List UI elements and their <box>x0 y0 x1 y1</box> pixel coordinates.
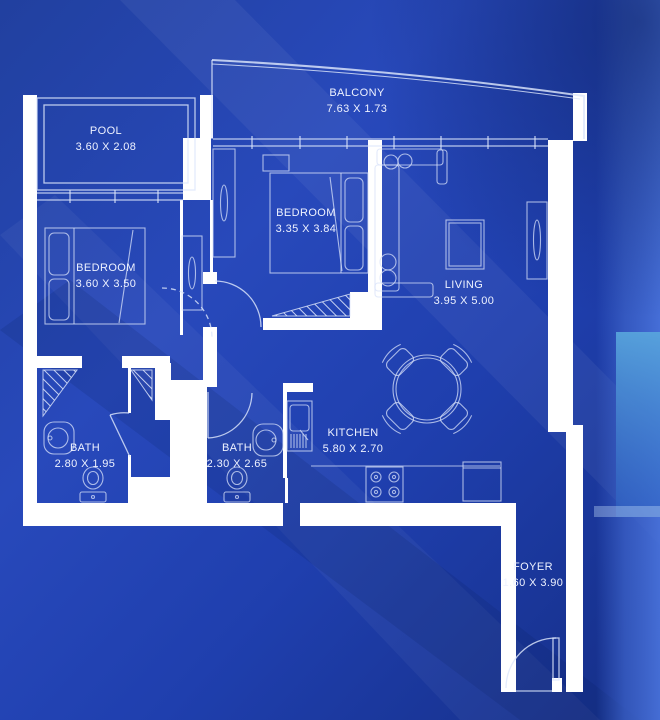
room-label-pool-dims: 3.60 X 2.08 <box>76 141 137 153</box>
room-label-bedroom-center-name: BEDROOM <box>276 207 336 219</box>
room-label-bedroom-left-dims: 3.60 X 3.50 <box>76 278 137 290</box>
room-label-balcony-name: BALCONY <box>329 87 385 99</box>
floor-plan-canvas: POOL 3.60 X 2.08 BALCONY 7.63 X 1.73 BED… <box>0 0 660 720</box>
room-label-living-name: LIVING <box>445 279 483 291</box>
room-label-kitchen-name: KITCHEN <box>327 427 378 439</box>
room-label-bedroom-center-dims: 3.35 X 3.84 <box>276 223 337 235</box>
room-label-bath-center-dims: 2.30 X 2.65 <box>207 458 268 470</box>
room-label-bath-left-dims: 2.80 X 1.95 <box>55 458 116 470</box>
room-label-foyer-name: FOYER <box>513 561 553 573</box>
room-label-pool-name: POOL <box>90 125 122 137</box>
room-label-bath-center-name: BATH <box>222 442 252 454</box>
room-label-living-dims: 3.95 X 5.00 <box>434 295 495 307</box>
room-label-balcony-dims: 7.63 X 1.73 <box>327 103 388 115</box>
room-label-kitchen-dims: 5.80 X 2.70 <box>323 443 384 455</box>
room-label-foyer-dims: 1.60 X 3.90 <box>503 577 564 589</box>
blueprint-floor-plan: POOL 3.60 X 2.08 BALCONY 7.63 X 1.73 BED… <box>0 0 660 720</box>
room-label-bath-left-name: BATH <box>70 442 100 454</box>
room-label-bedroom-left-name: BEDROOM <box>76 262 136 274</box>
